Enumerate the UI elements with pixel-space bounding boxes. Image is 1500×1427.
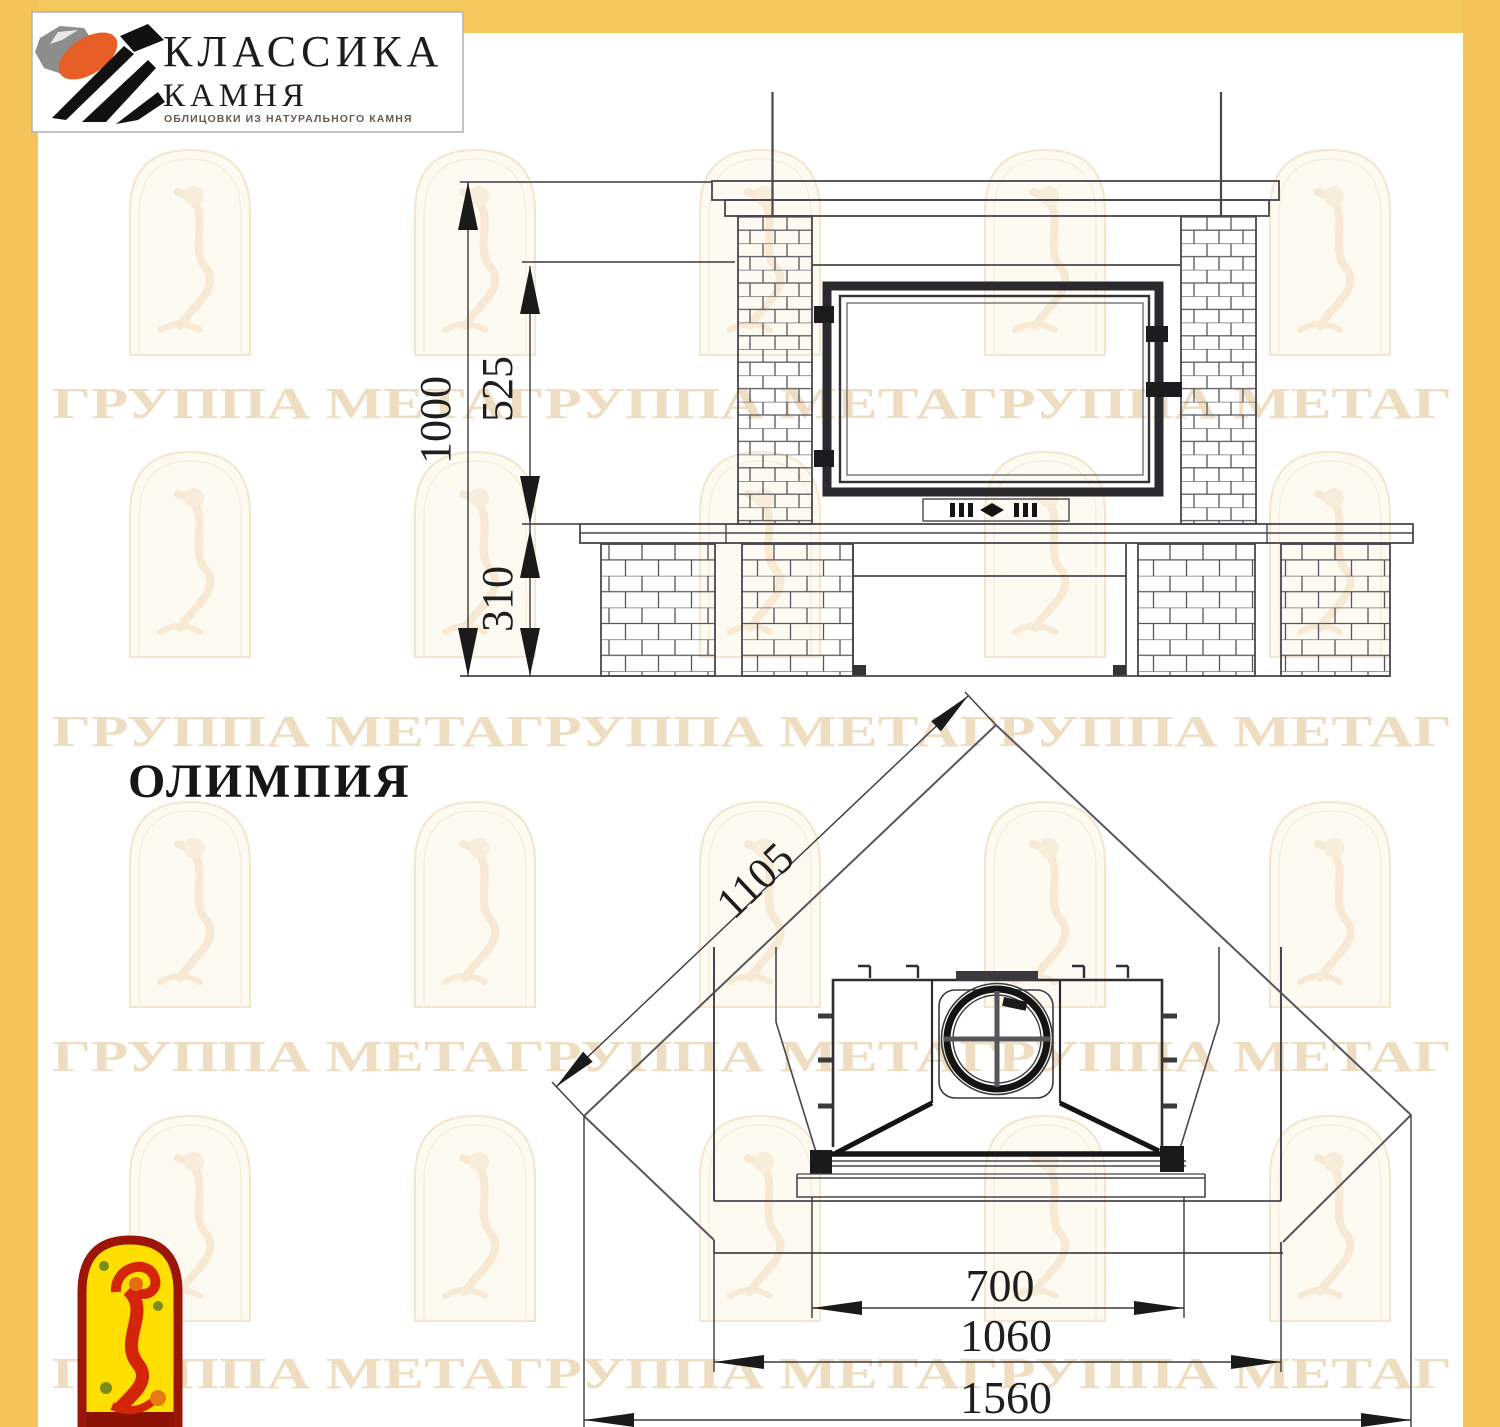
svg-text:ГРУППА МЕТАГРУППА МЕТАГРУППА М: ГРУППА МЕТАГРУППА МЕТАГРУППА МЕТАГ xyxy=(52,1032,1452,1081)
svg-text:1060: 1060 xyxy=(960,1310,1052,1361)
svg-text:КАМНЯ: КАМНЯ xyxy=(163,78,309,114)
svg-text:1000: 1000 xyxy=(411,376,460,464)
svg-text:310: 310 xyxy=(473,566,522,632)
svg-text:ГРУППА МЕТАГРУППА МЕТАГРУППА М: ГРУППА МЕТАГРУППА МЕТАГРУППА МЕТАГ xyxy=(52,1349,1452,1398)
svg-text:ОБЛИЦОВКИ ИЗ НАТУРАЛЬНОГО КАМН: ОБЛИЦОВКИ ИЗ НАТУРАЛЬНОГО КАМНЯ xyxy=(164,113,413,125)
svg-text:КЛАССИКА: КЛАССИКА xyxy=(163,27,443,76)
svg-text:ГРУППА МЕТАГРУППА МЕТАГРУППА М: ГРУППА МЕТАГРУППА МЕТАГРУППА МЕТАГ xyxy=(52,707,1452,756)
svg-text:ОЛИМПИЯ: ОЛИМПИЯ xyxy=(128,755,412,808)
svg-text:1560: 1560 xyxy=(960,1372,1052,1423)
svg-text:700: 700 xyxy=(966,1260,1035,1311)
svg-text:525: 525 xyxy=(473,356,522,422)
